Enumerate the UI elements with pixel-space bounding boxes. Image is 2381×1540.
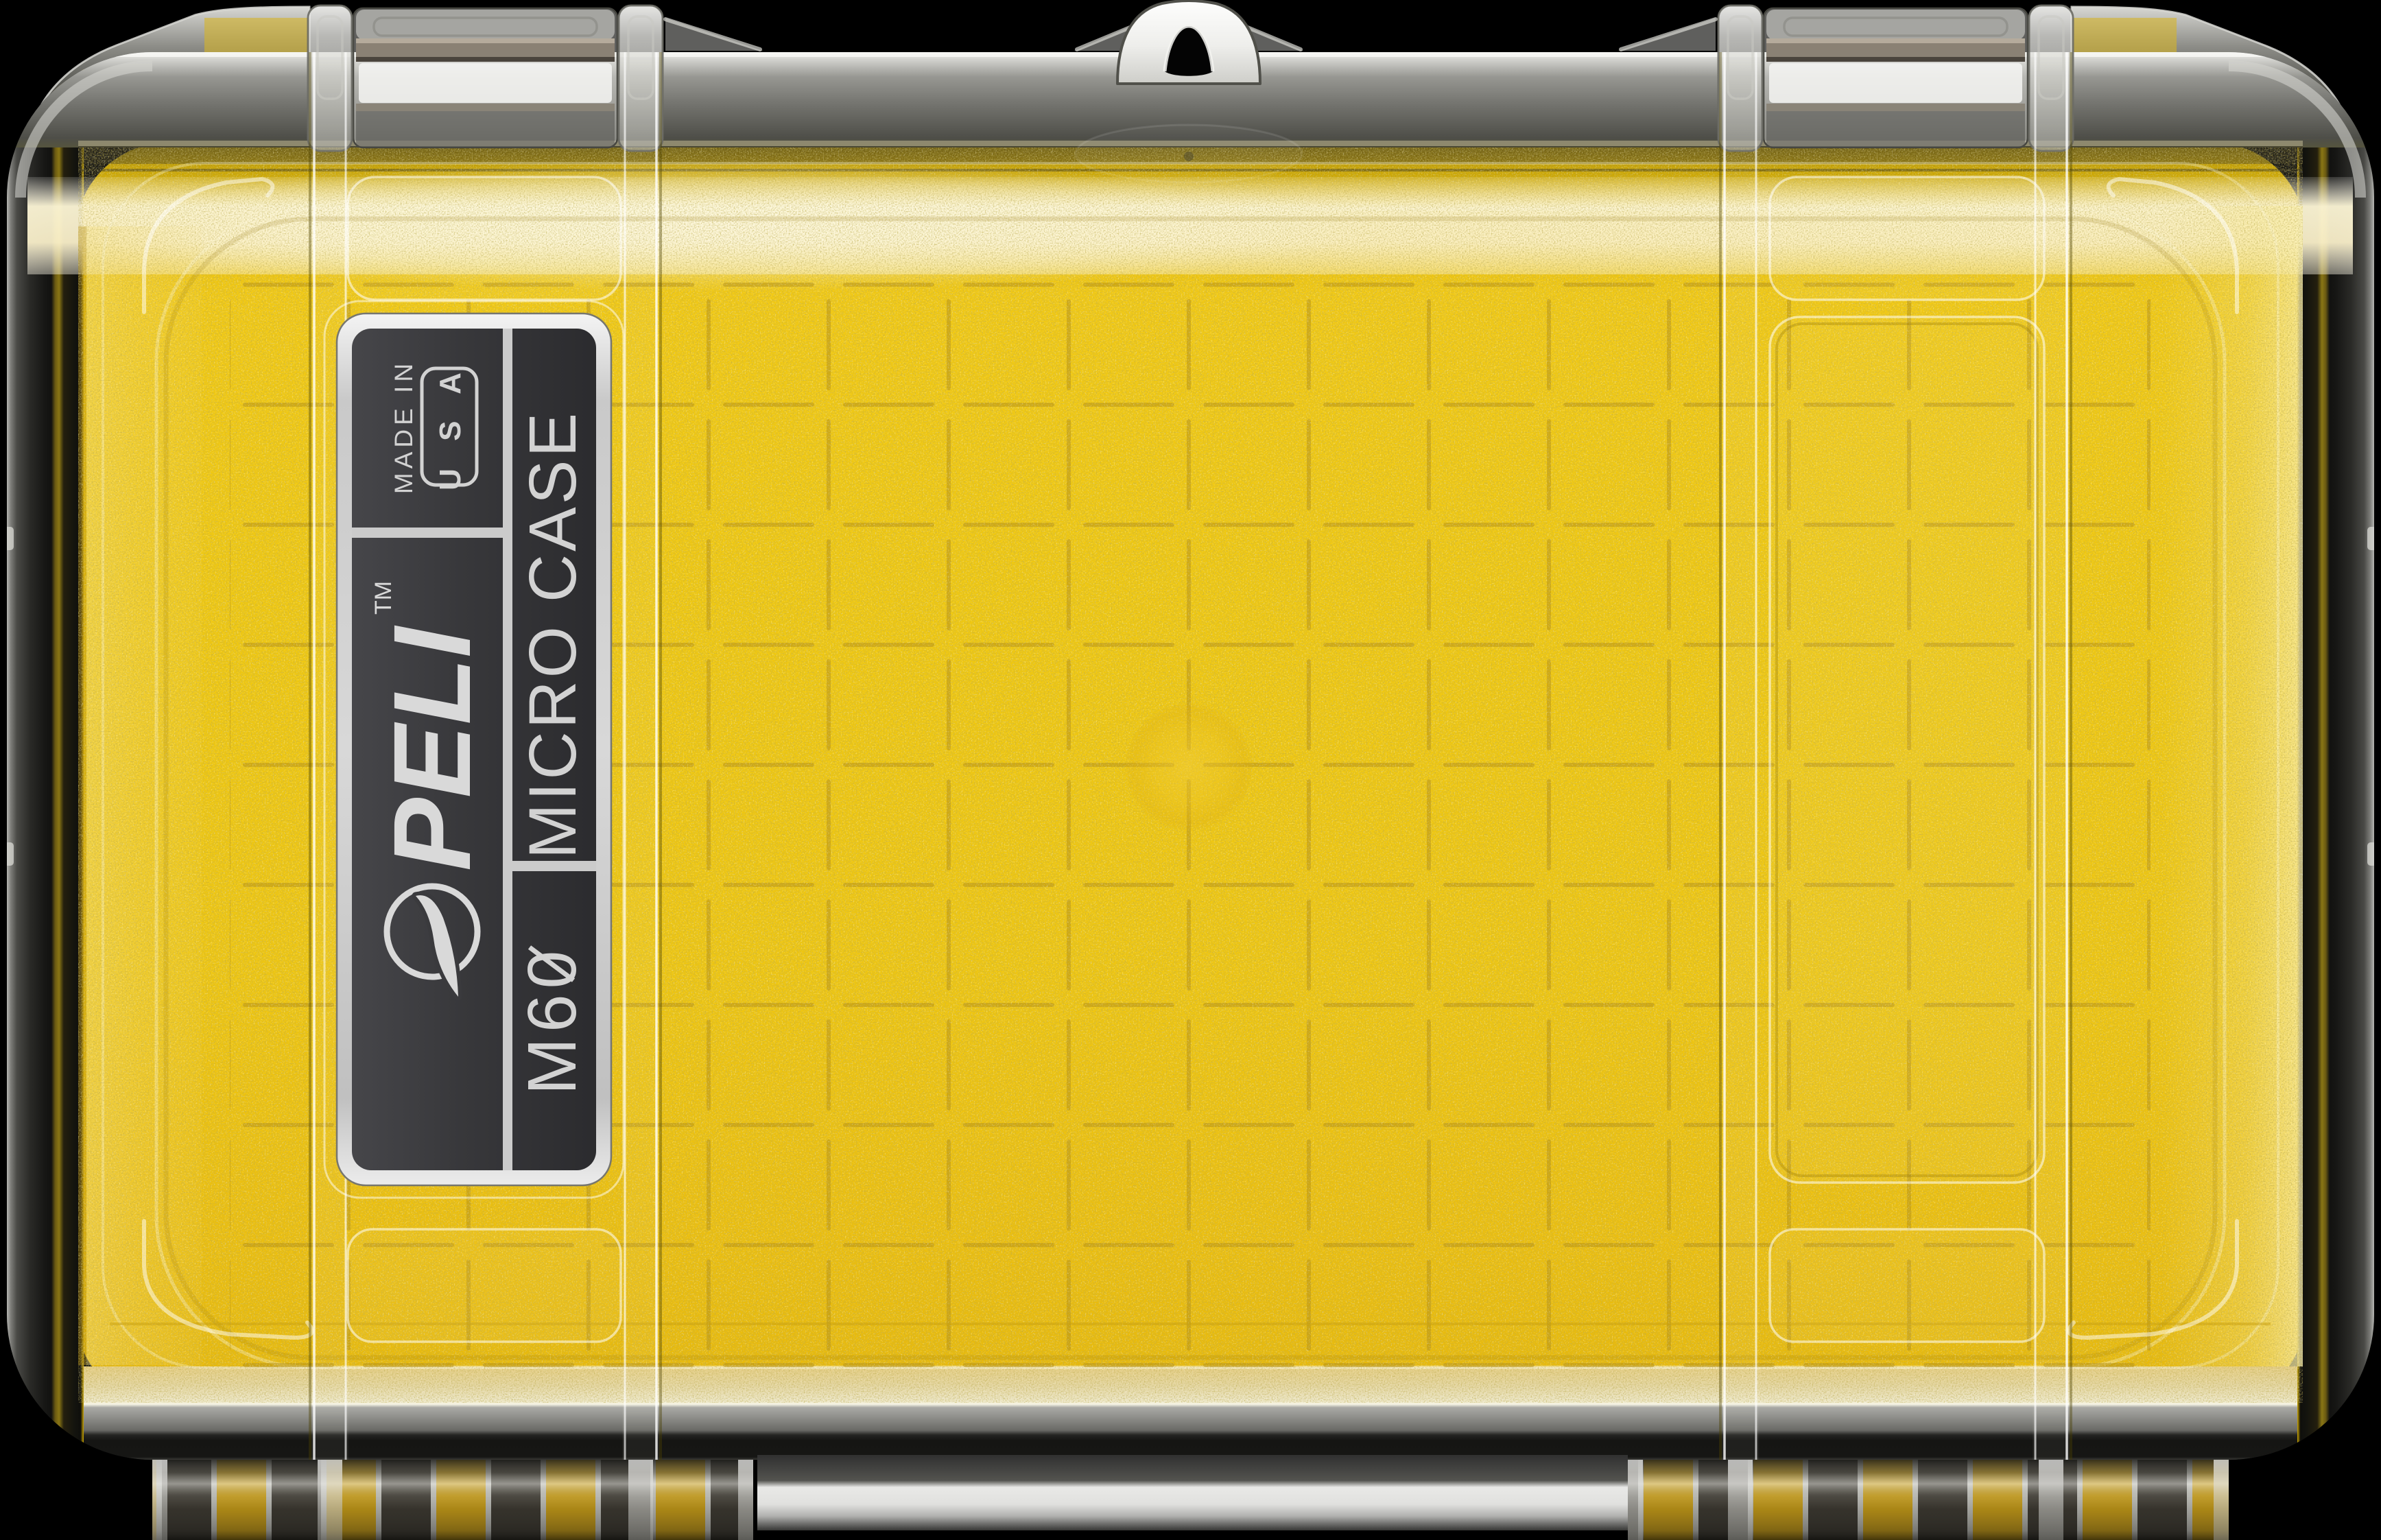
- svg-text:PELI: PELI: [370, 625, 493, 871]
- svg-text:MICRO CASE: MICRO CASE: [515, 410, 590, 859]
- svg-text:M60: M60: [514, 945, 591, 1095]
- svg-text:MADE IN: MADE IN: [390, 359, 418, 494]
- svg-text:U S A: U S A: [434, 363, 467, 490]
- svg-text:TM: TM: [370, 581, 396, 615]
